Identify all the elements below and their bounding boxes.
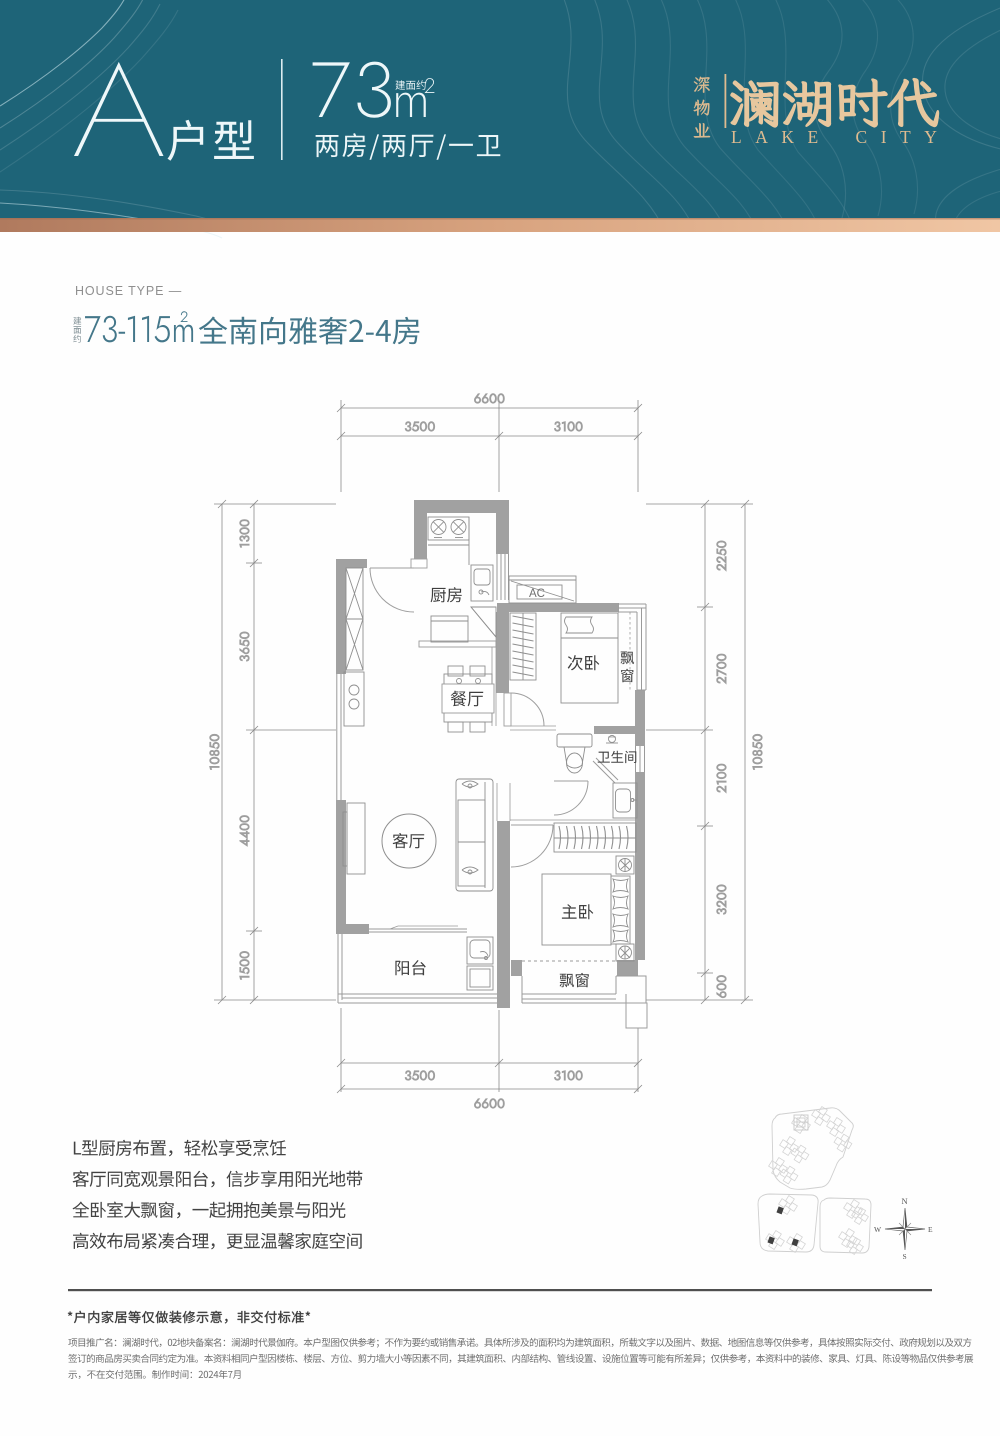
svg-text:AC: AC <box>529 588 545 600</box>
svg-text:HOUSE TYPE —: HOUSE TYPE — <box>75 284 182 298</box>
svg-text:N: N <box>902 1196 908 1206</box>
svg-text:LAKE CITY: LAKE CITY <box>731 127 950 147</box>
svg-text:W: W <box>874 1225 882 1234</box>
svg-text:E: E <box>928 1225 933 1234</box>
svg-text:S: S <box>903 1252 907 1261</box>
